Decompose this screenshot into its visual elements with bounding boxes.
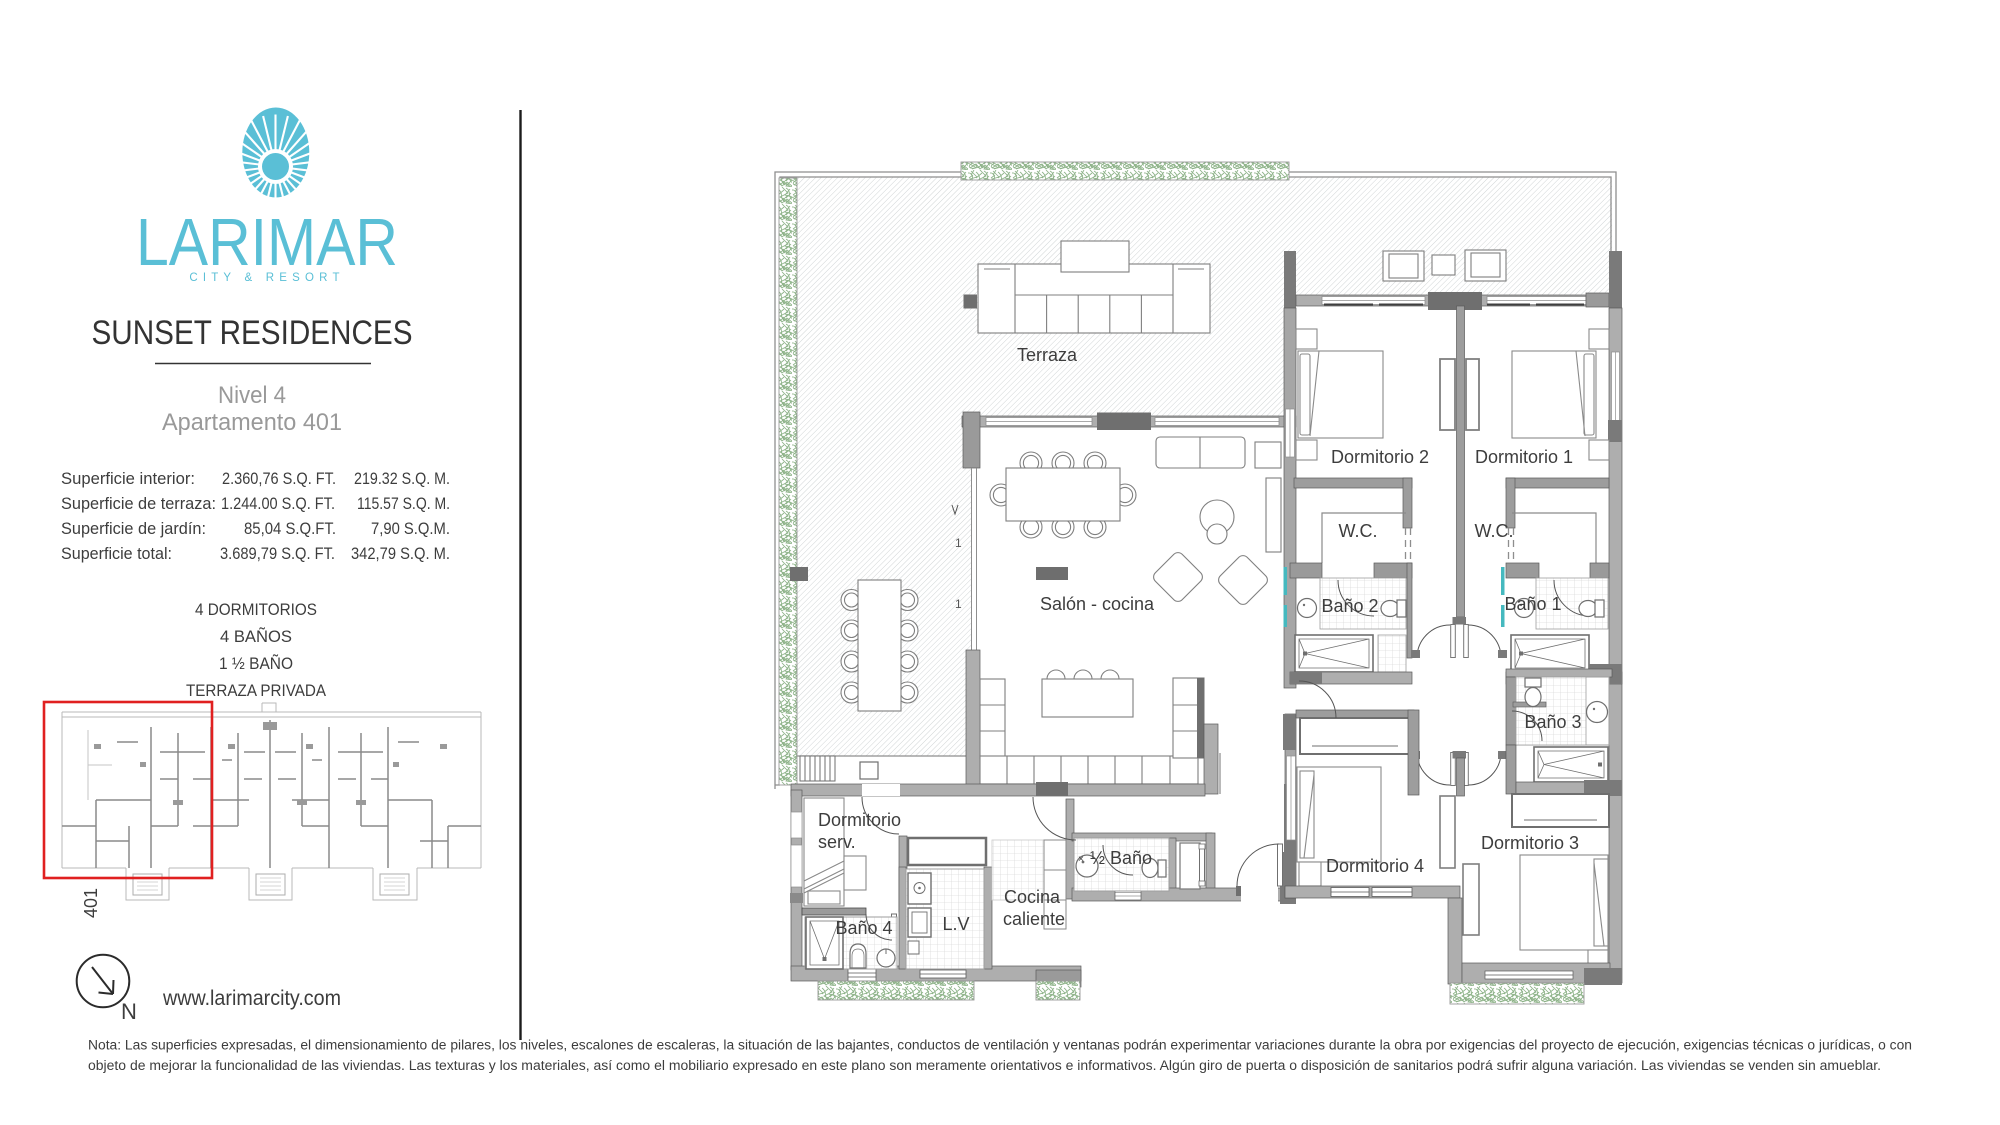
svg-text:Dormitorio 2: Dormitorio 2 (1331, 447, 1429, 467)
svg-text:342,79 S.Q. M.: 342,79 S.Q. M. (351, 545, 450, 563)
svg-text:3.689,79 S.Q. FT.: 3.689,79 S.Q. FT. (220, 545, 335, 563)
svg-text:Dormitorio 1: Dormitorio 1 (1475, 447, 1573, 467)
svg-text:Baño 1: Baño 1 (1504, 594, 1561, 614)
svg-text:219.32 S.Q. M.: 219.32 S.Q. M. (354, 470, 450, 488)
svg-text:401: 401 (81, 888, 101, 918)
svg-text:1: 1 (955, 597, 962, 611)
svg-text:objeto de mejorar la funcional: objeto de mejorar la funcionalidad de la… (88, 1058, 1881, 1073)
svg-text:CITY & RESORT: CITY & RESORT (189, 272, 344, 284)
svg-text:Superficie total:: Superficie total: (61, 545, 172, 563)
svg-text:Salón - cocina: Salón - cocina (1040, 594, 1155, 614)
svg-text:Apartamento 401: Apartamento 401 (162, 409, 342, 436)
svg-text:Nota: Las superficies expresad: Nota: Las superficies expresadas, el dim… (88, 1038, 1912, 1053)
svg-text:Baño 3: Baño 3 (1524, 712, 1581, 732)
svg-text:2.360,76 S.Q. FT.: 2.360,76 S.Q. FT. (222, 470, 336, 488)
svg-text:caliente: caliente (1003, 909, 1065, 929)
svg-text:SUNSET RESIDENCES: SUNSET RESIDENCES (92, 314, 413, 352)
svg-text:1: 1 (955, 536, 962, 550)
svg-text:www.larimarcity.com: www.larimarcity.com (162, 987, 341, 1010)
svg-text:4 BAÑOS: 4 BAÑOS (220, 626, 292, 646)
svg-text:Superficie de jardín:: Superficie de jardín: (61, 520, 206, 538)
svg-text:TERRAZA PRIVADA: TERRAZA PRIVADA (186, 682, 326, 700)
svg-text:W.C.: W.C. (1475, 521, 1514, 541)
svg-text:1.244.00 S.Q. FT.: 1.244.00 S.Q. FT. (221, 495, 335, 513)
svg-text:7,90 S.Q.M.: 7,90 S.Q.M. (371, 520, 450, 538)
svg-text:Dormitorio 3: Dormitorio 3 (1481, 833, 1579, 853)
svg-text:Dormitorio: Dormitorio (818, 810, 901, 830)
svg-text:85,04 S.Q.FT.: 85,04 S.Q.FT. (244, 520, 336, 538)
svg-text:N: N (121, 999, 137, 1024)
svg-text:Superficie interior:: Superficie interior: (61, 470, 195, 488)
svg-text:1 ½ BAÑO: 1 ½ BAÑO (219, 653, 293, 673)
svg-text:Dormitorio 4: Dormitorio 4 (1326, 856, 1424, 876)
svg-text:½ Baño: ½ Baño (1090, 848, 1152, 868)
svg-text:Superficie de terraza:: Superficie de terraza: (61, 495, 216, 513)
svg-text:Nivel 4: Nivel 4 (218, 382, 286, 409)
svg-text:LARIMAR: LARIMAR (136, 205, 398, 280)
svg-text:115.57 S.Q. M.: 115.57 S.Q. M. (357, 495, 450, 513)
svg-text:W.C.: W.C. (1339, 521, 1378, 541)
svg-text:L.V: L.V (942, 914, 969, 934)
svg-text:Baño 4: Baño 4 (835, 918, 892, 938)
svg-text:×: × (1078, 854, 1084, 865)
svg-text:serv.: serv. (818, 832, 856, 852)
svg-text:4 DORMITORIOS: 4 DORMITORIOS (195, 601, 317, 619)
svg-text:Terraza: Terraza (1017, 345, 1078, 365)
svg-text:Cocina: Cocina (1004, 887, 1061, 907)
svg-text:Baño 2: Baño 2 (1321, 596, 1378, 616)
